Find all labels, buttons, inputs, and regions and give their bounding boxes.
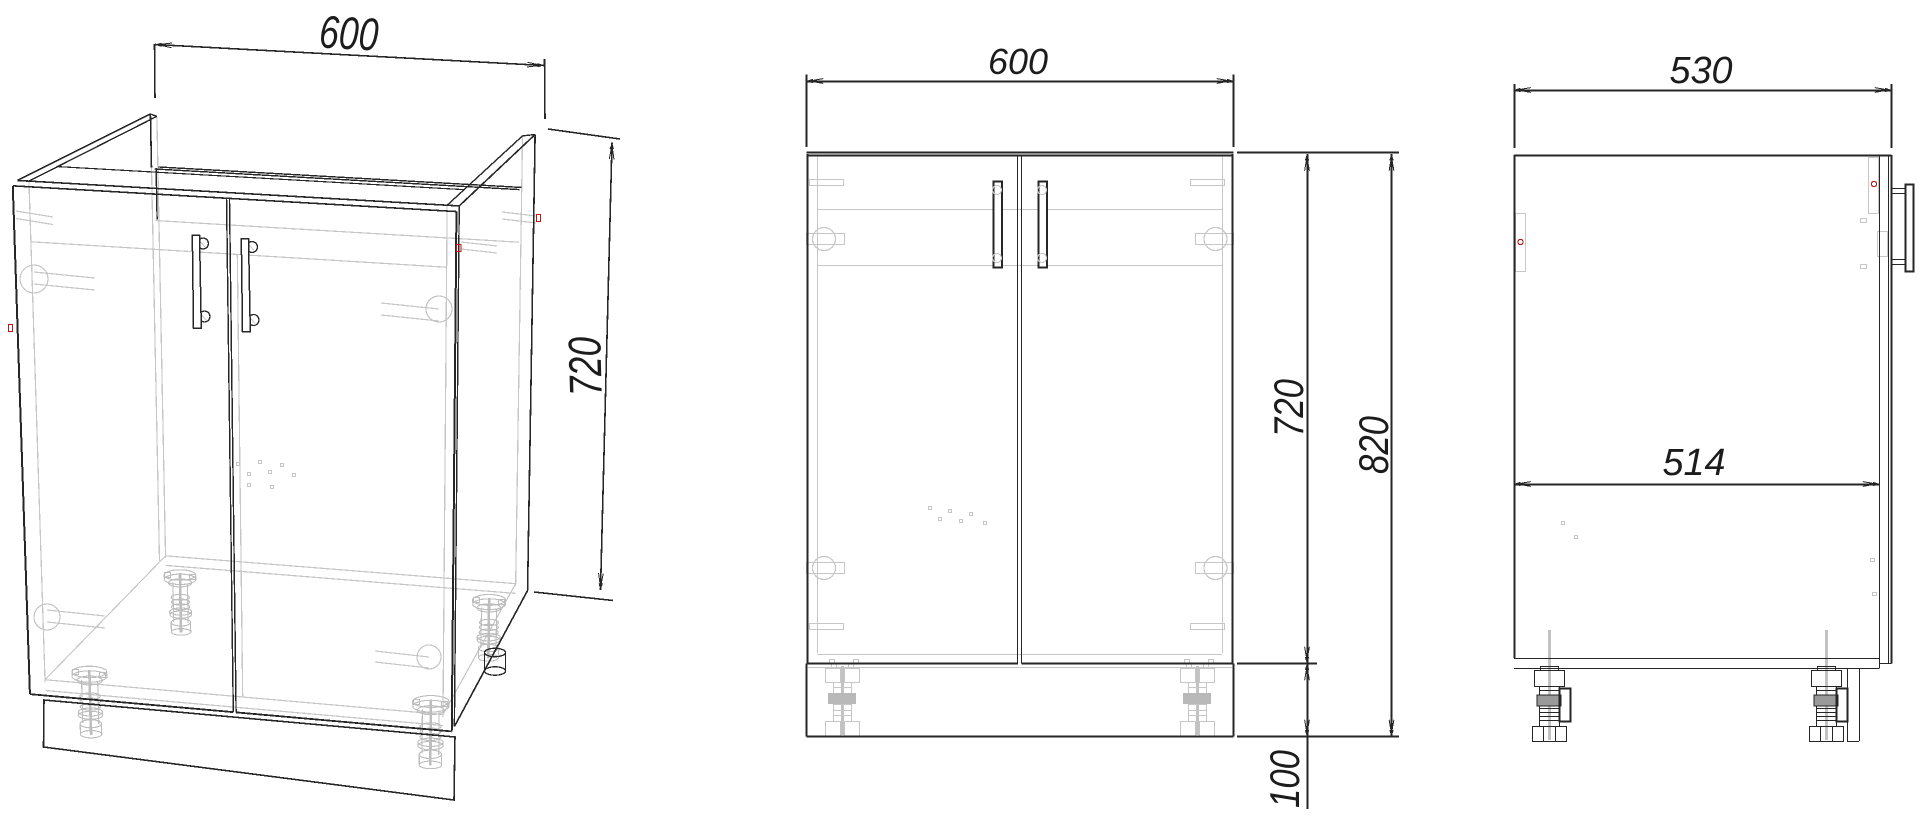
svg-text:600: 600 [988, 41, 1048, 82]
svg-text:720: 720 [558, 336, 612, 397]
svg-text:100: 100 [1261, 749, 1308, 808]
svg-text:600: 600 [318, 5, 380, 60]
svg-text:530: 530 [1670, 50, 1733, 92]
svg-text:820: 820 [1350, 415, 1397, 474]
svg-text:720: 720 [1265, 378, 1312, 437]
svg-text:514: 514 [1663, 442, 1726, 484]
